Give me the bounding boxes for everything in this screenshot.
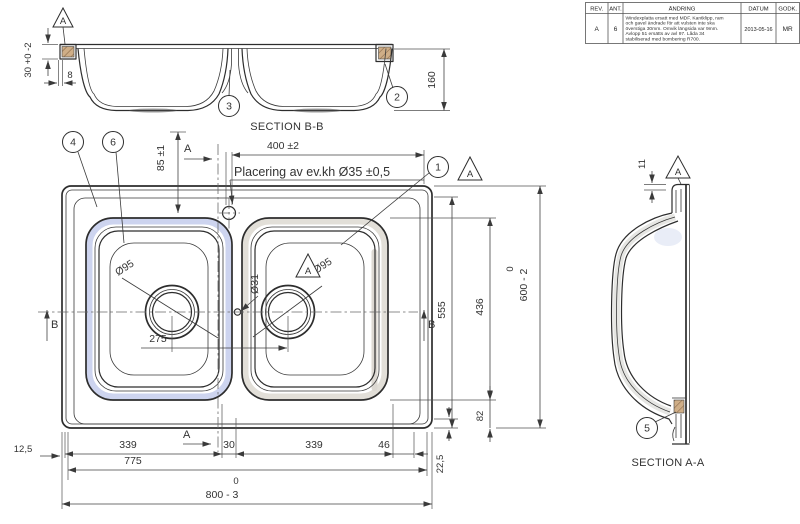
dim-800: 0 800 - 3 (62, 432, 432, 509)
svg-text:A: A (183, 429, 191, 441)
svg-text:4: 4 (70, 137, 76, 149)
rev-value: A (595, 26, 600, 33)
svg-text:800 - 3: 800 - 3 (206, 489, 239, 501)
left-bowl (86, 218, 232, 400)
dim-82: 82 (475, 386, 490, 442)
svg-text:160: 160 (426, 71, 438, 89)
svg-text:5: 5 (644, 423, 650, 435)
svg-text:6: 6 (110, 137, 116, 149)
cut-marker-a-bottom: A (183, 429, 211, 444)
svg-text:275: 275 (149, 333, 167, 345)
svg-text:B: B (428, 319, 435, 331)
svg-text:555: 555 (436, 301, 448, 319)
cut-marker-a-top: A (184, 143, 212, 159)
dim-22-5: 22,5 (434, 407, 458, 473)
dim-bottom-chain: 339 30 339 46 (65, 404, 428, 460)
svg-text:A: A (675, 167, 682, 178)
svg-text:339: 339 (305, 439, 323, 451)
balloon-4: 4 (63, 132, 98, 208)
svg-text:2: 2 (394, 92, 400, 104)
ant-col-header: ANT. (609, 7, 622, 13)
svg-text:85 ±1: 85 ±1 (155, 145, 167, 171)
svg-text:Avlopp 51 ersätts av avl 97. L: Avlopp 51 ersätts av avl 97. Låda 34 (626, 30, 705, 37)
drawing-sheet: 30 +0 -2 A 8 160 2 (0, 0, 800, 524)
revision-table: REV. ANT. ÄNDRING DATUM GODK. A 6 Windex… (586, 3, 800, 44)
andring-col-header: ÄNDRING (669, 6, 696, 13)
svg-text:0: 0 (505, 266, 516, 271)
svg-text:A: A (305, 266, 312, 277)
svg-text:och gavel ändrade för att vuls: och gavel ändrade för att vulsten inte s… (626, 21, 715, 27)
svg-text:Windexplatta ersatt med MDF. K: Windexplatta ersatt med MDF. Kantklipp, … (626, 16, 724, 22)
section-bb-label: SECTION B-B (250, 121, 324, 133)
svg-text:A: A (60, 16, 67, 27)
approved-value: MR (783, 26, 793, 33)
section-aa-label: SECTION A-A (632, 457, 705, 469)
svg-text:A: A (467, 169, 474, 180)
svg-text:Ø31: Ø31 (249, 274, 261, 294)
date-value: 2013-05-16 (744, 27, 772, 33)
dim-dia95-left: Ø95 (113, 258, 218, 338)
svg-text:11: 11 (637, 159, 648, 169)
svg-text:överstiga 30mm. Omvik längsida: överstiga 30mm. Omvik längsida var 9mm. (626, 26, 719, 32)
dim-lip-8: 8 (44, 60, 76, 86)
svg-text:46: 46 (378, 439, 390, 451)
svg-text:600 - 2: 600 - 2 (518, 269, 530, 302)
svg-text:0: 0 (233, 476, 238, 487)
datum-symbol-topright: A (458, 157, 482, 180)
dim-555: 555 (434, 197, 458, 428)
svg-text:A: A (184, 143, 192, 155)
balloon-2: 2 (385, 64, 408, 108)
right-bowl (242, 218, 388, 400)
svg-text:339: 339 (119, 439, 137, 451)
datum-symbol-aa: A (666, 156, 690, 184)
main-top-view: 400 ±2 Placering av ev.kh Ø35 ±0,5 85 ±1… (14, 132, 546, 510)
dim-rim-height-text: 30 +0 -2 (23, 42, 34, 77)
change-description: Windexplatta ersatt med MDF. Kantklipp, … (626, 16, 724, 43)
section-bb-view: 30 +0 -2 A 8 160 2 (23, 8, 450, 133)
datum-col-header: DATUM (748, 7, 768, 13)
rev-col-header: REV. (590, 7, 603, 13)
svg-text:400 ±2: 400 ±2 (267, 140, 299, 152)
svg-text:1: 1 (435, 162, 441, 174)
svg-text:8: 8 (67, 70, 72, 81)
svg-text:30: 30 (223, 439, 235, 451)
svg-text:B: B (51, 319, 58, 331)
dim-rim-height: 30 +0 -2 (23, 28, 58, 78)
datum-symbol-topleft: A (53, 8, 73, 44)
balloon-3: 3 (219, 70, 240, 117)
balloon-5: 5 (637, 412, 677, 439)
ant-value: 6 (614, 26, 618, 33)
godk-col-header: GODK. (778, 7, 797, 13)
svg-text:22,5: 22,5 (435, 455, 446, 474)
cad-drawing: 30 +0 -2 A 8 160 2 (0, 0, 800, 524)
svg-text:Ø95: Ø95 (113, 258, 136, 279)
svg-text:stabiliserad med bombering R70: stabiliserad med bombering R700. (626, 36, 701, 42)
svg-text:775: 775 (124, 455, 142, 467)
section-aa-view: 11 A 5 SECTION A-A (612, 156, 705, 469)
dim-11: 11 (637, 159, 666, 203)
svg-text:12,5: 12,5 (14, 444, 33, 455)
svg-text:Placering av ev.kh Ø35 ±0,5: Placering av ev.kh Ø35 ±0,5 (234, 165, 390, 179)
dim-12-5: 12,5 (14, 432, 68, 480)
cut-marker-b-left: B (47, 310, 58, 341)
svg-text:3: 3 (226, 101, 232, 113)
cut-marker-b-right: B (424, 310, 435, 341)
svg-text:436: 436 (474, 298, 486, 316)
dim-85: 85 ±1 (155, 132, 186, 213)
balloon-6: 6 (103, 132, 125, 244)
svg-text:82: 82 (475, 411, 486, 422)
